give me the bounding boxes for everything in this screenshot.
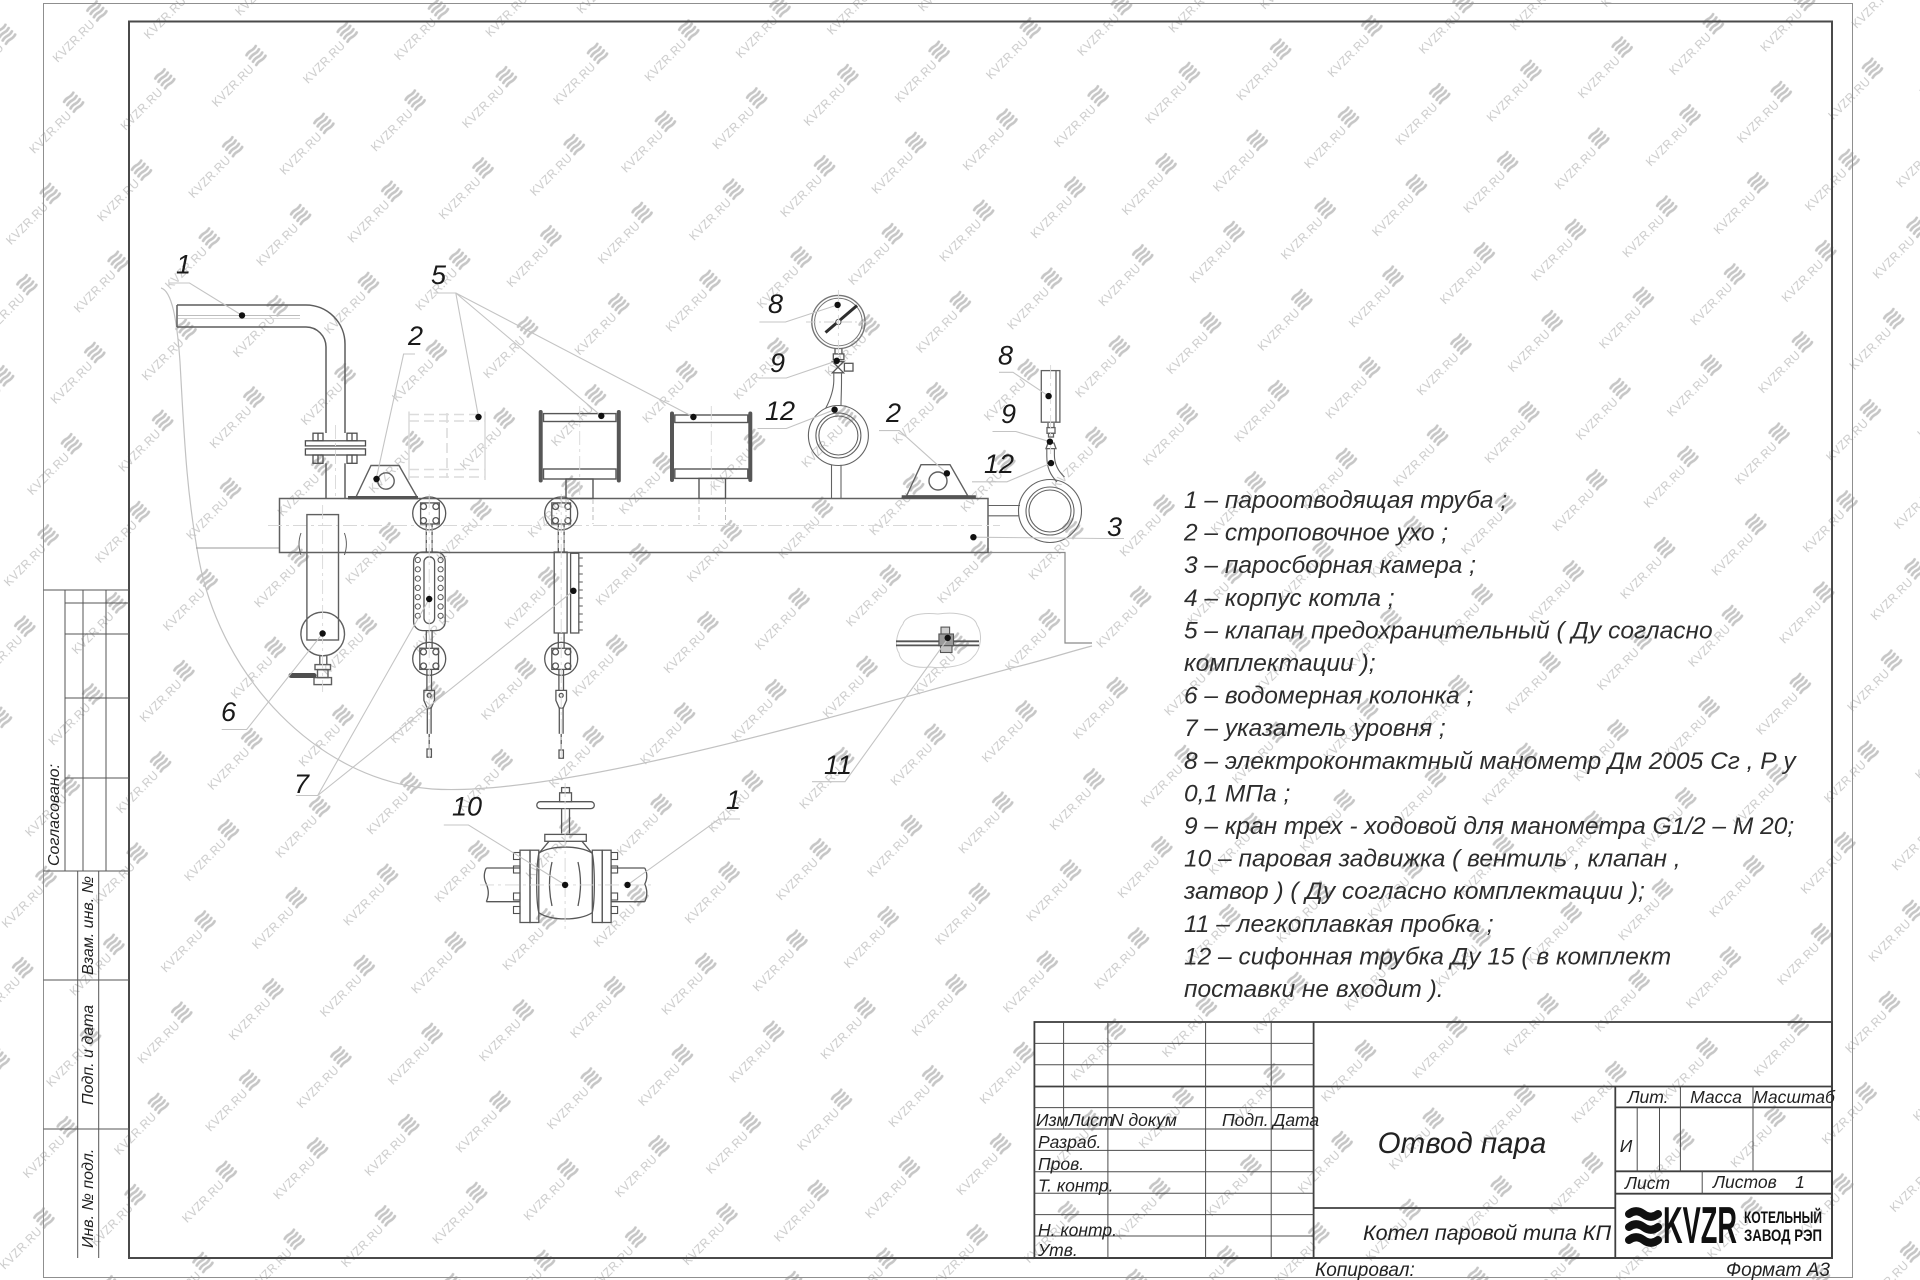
svg-text:Т. контр.: Т. контр. bbox=[1038, 1176, 1113, 1196]
svg-text:Согласовано:: Согласовано: bbox=[46, 764, 63, 866]
svg-text:12: 12 bbox=[984, 449, 1014, 479]
svg-text:Разраб.: Разраб. bbox=[1038, 1132, 1101, 1152]
svg-text:5 – клапан предохранительный: 5 – клапан предохранительный ( Ду соглас… bbox=[1184, 617, 1713, 644]
svg-text:Копировал:: Копировал: bbox=[1315, 1260, 1415, 1280]
svg-text:2: 2 bbox=[407, 321, 423, 351]
svg-text:9: 9 bbox=[1001, 399, 1016, 429]
svg-text:Лит.: Лит. bbox=[1627, 1087, 1669, 1107]
svg-text:5: 5 bbox=[431, 260, 447, 290]
svg-text:поставки не входит ).: поставки не входит ). bbox=[1184, 976, 1444, 1003]
svg-text:Взам. инв. №: Взам. инв. № bbox=[80, 876, 97, 975]
svg-text:Подп.: Подп. bbox=[1222, 1110, 1269, 1130]
svg-text:8 – электроконтактный манометр: 8 – электроконтактный манометр Дм 2005 С… bbox=[1184, 748, 1797, 775]
svg-text:N докум: N докум bbox=[1111, 1110, 1177, 1130]
svg-text:2: 2 bbox=[885, 398, 901, 428]
svg-text:11 – легкоплавкая пробка ;: 11 – легкоплавкая пробка ; bbox=[1184, 911, 1494, 938]
svg-text:11: 11 bbox=[824, 750, 852, 780]
svg-text:3 – паросборная камера ;: 3 – паросборная камера ; bbox=[1184, 552, 1476, 579]
svg-text:ИзмЛист: ИзмЛист bbox=[1036, 1110, 1114, 1130]
svg-text:4 – корпус котла ;: 4 – корпус котла ; bbox=[1184, 585, 1395, 612]
svg-text:1: 1 bbox=[726, 785, 741, 815]
svg-text:Отвод пара: Отвод пара bbox=[1378, 1127, 1547, 1160]
svg-text:9: 9 bbox=[770, 348, 785, 378]
svg-text:Масса: Масса bbox=[1690, 1087, 1742, 1107]
svg-text:1: 1 bbox=[1795, 1172, 1805, 1192]
svg-text:12 – сифонная трубка Ду 15: 12 – сифонная трубка Ду 15 ( в комплект bbox=[1184, 943, 1671, 970]
svg-text:затвор ) ( Ду согласно компле: затвор ) ( Ду согласно комплектации ); bbox=[1183, 878, 1645, 905]
svg-text:Подп. и дата: Подп. и дата bbox=[80, 1005, 97, 1105]
svg-text:Масштаб: Масштаб bbox=[1753, 1087, 1836, 1107]
svg-text:0,1 МПа ;: 0,1 МПа ; bbox=[1184, 780, 1290, 807]
svg-text:8: 8 bbox=[998, 341, 1013, 371]
svg-text:Формат А3: Формат А3 bbox=[1726, 1260, 1830, 1280]
svg-text:1 – пароотводящая труба ;: 1 – пароотводящая труба ; bbox=[1184, 487, 1507, 514]
svg-text:Листов: Листов bbox=[1712, 1172, 1777, 1192]
svg-text:KVZR: KVZR bbox=[1663, 1197, 1737, 1255]
svg-text:10 – паровая задвижка ( вент: 10 – паровая задвижка ( вентиль , клапан… bbox=[1184, 846, 1681, 873]
svg-text:Н. контр.: Н. контр. bbox=[1038, 1220, 1117, 1240]
svg-text:10: 10 bbox=[452, 792, 482, 822]
svg-text:1: 1 bbox=[176, 250, 191, 280]
svg-text:7: 7 bbox=[294, 769, 310, 799]
svg-text:Инв. № подл.: Инв. № подл. bbox=[80, 1149, 97, 1248]
svg-text:Котел паровой типа КП: Котел паровой типа КП bbox=[1363, 1221, 1612, 1245]
svg-text:Утв.: Утв. bbox=[1037, 1240, 1078, 1260]
svg-text:Пров.: Пров. bbox=[1038, 1154, 1084, 1174]
svg-text:ЗАВОД РЭП: ЗАВОД РЭП bbox=[1744, 1227, 1822, 1245]
svg-text:6 – водомерная колонка ;: 6 – водомерная колонка ; bbox=[1184, 683, 1473, 710]
svg-text:комплектации );: комплектации ); bbox=[1184, 650, 1376, 677]
svg-text:3: 3 bbox=[1107, 512, 1122, 542]
svg-text:Лист: Лист bbox=[1624, 1173, 1670, 1193]
svg-text:6: 6 bbox=[221, 697, 237, 727]
svg-text:КОТЕЛЬНЫЙ: КОТЕЛЬНЫЙ bbox=[1744, 1208, 1822, 1227]
svg-text:9 – кран трех - ходовой для: 9 – кран трех - ходовой для манометра G1… bbox=[1184, 813, 1794, 840]
svg-text:12: 12 bbox=[765, 396, 795, 426]
svg-text:8: 8 bbox=[768, 289, 783, 319]
svg-text:И: И bbox=[1620, 1136, 1633, 1156]
svg-text:7 – указатель уровня ;: 7 – указатель уровня ; bbox=[1184, 715, 1446, 742]
svg-text:2 – строповочное ухо ;: 2 – строповочное ухо ; bbox=[1183, 520, 1448, 547]
svg-text:Дата: Дата bbox=[1271, 1110, 1319, 1130]
